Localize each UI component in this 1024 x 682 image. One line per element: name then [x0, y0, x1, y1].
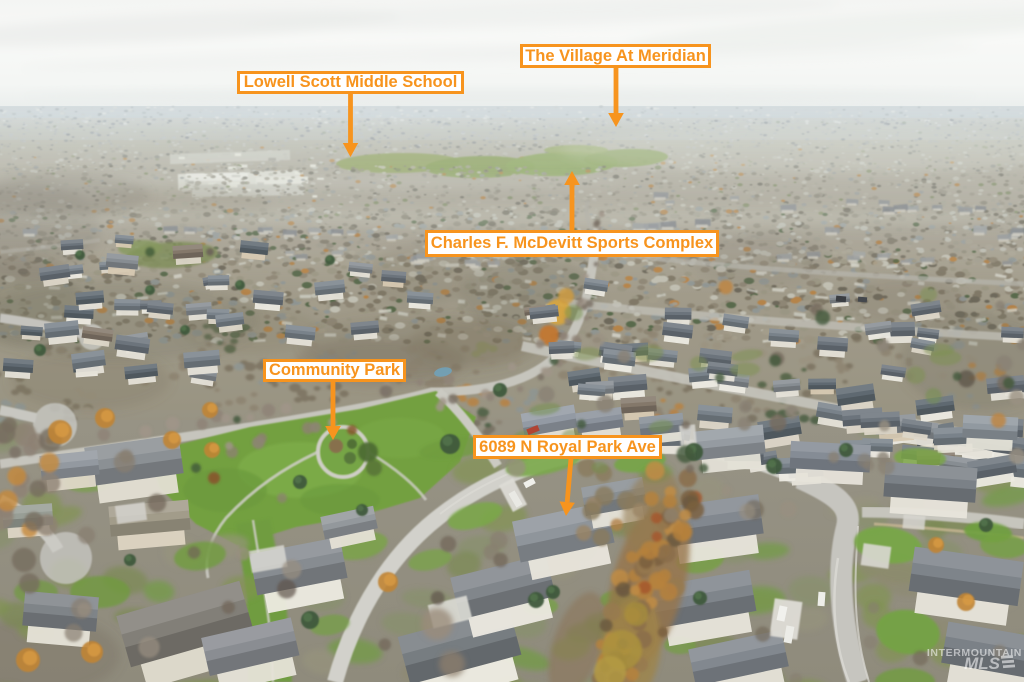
svg-text:MLS: MLS	[964, 654, 1001, 673]
